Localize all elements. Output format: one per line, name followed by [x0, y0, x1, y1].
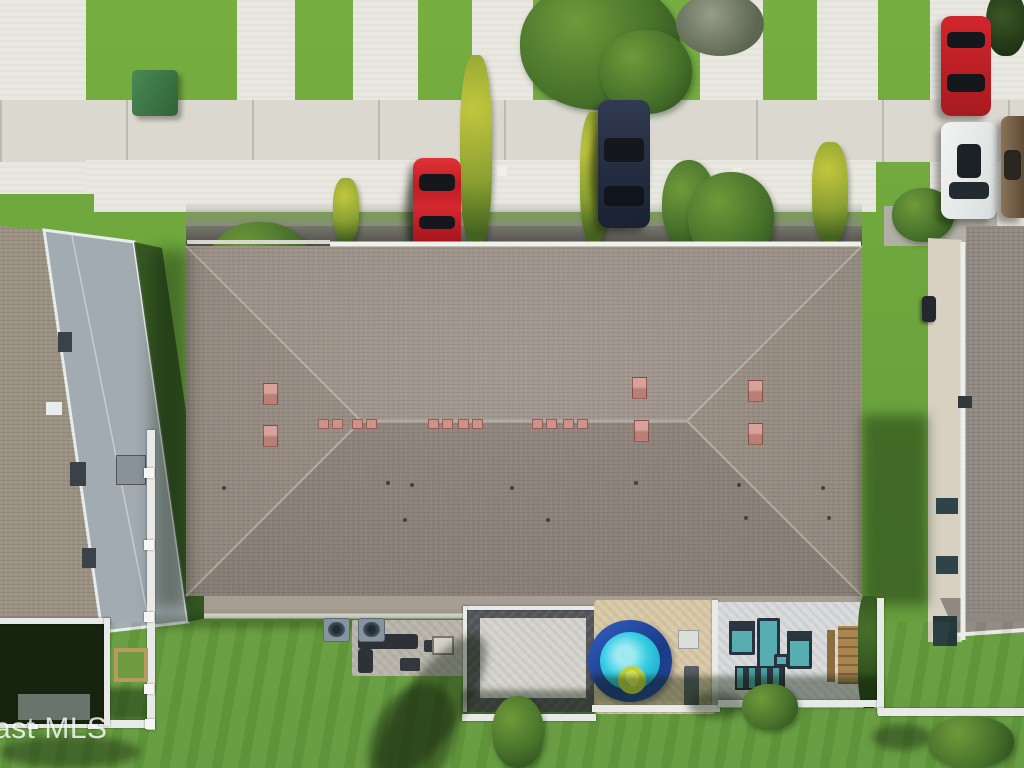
dark-sofa — [358, 649, 373, 673]
garden-bed — [114, 648, 148, 682]
fence-post — [144, 540, 154, 550]
roof-vent — [634, 420, 649, 442]
skylight — [46, 402, 62, 415]
mls-watermark: ast MLS — [0, 712, 108, 746]
pipe-vent — [821, 486, 825, 490]
pipe-vent — [827, 516, 831, 520]
window — [936, 498, 958, 514]
teal-chair — [729, 628, 755, 655]
dark-chair — [400, 658, 420, 671]
roof-vent-pair — [352, 419, 377, 429]
pipe-vent — [744, 516, 748, 520]
lanai-frame — [0, 618, 110, 624]
corridor-shadow — [152, 250, 188, 610]
tree-shadow — [872, 724, 932, 750]
lanai-furniture — [70, 462, 86, 486]
equipment-pad — [116, 455, 146, 485]
pipe-vent — [386, 481, 390, 485]
teal-side-table — [774, 654, 789, 667]
lanai-furniture — [82, 548, 96, 568]
roof-vent — [748, 423, 763, 445]
fence-post — [145, 719, 155, 729]
roof-vent — [748, 380, 763, 402]
pipe-vent — [510, 486, 514, 490]
roof-vent-pair — [532, 419, 557, 429]
aerial-photo: ast MLS — [0, 0, 1024, 768]
yard-fence — [877, 598, 884, 714]
screen-frame — [463, 606, 599, 610]
fence-post — [144, 468, 154, 478]
roof-vent — [263, 425, 278, 447]
teal-chair — [787, 638, 812, 669]
roof-vent-pair — [428, 419, 453, 429]
roof-vent — [632, 377, 647, 399]
small-dark-car — [922, 296, 936, 322]
pipe-vent — [403, 518, 407, 522]
shrub-shadow — [688, 692, 746, 718]
yard-fence — [878, 708, 1024, 716]
pipe-vent — [222, 486, 226, 490]
pool-equipment-box — [678, 630, 699, 649]
center-patio — [480, 618, 586, 698]
roof-vent-pair — [318, 419, 343, 429]
roof-vent-pair — [563, 419, 588, 429]
fence-post — [144, 684, 154, 694]
pipe-vent — [546, 518, 550, 522]
fence-post — [144, 612, 154, 622]
roof-vent-pair — [458, 419, 483, 429]
small-tree — [928, 716, 1014, 768]
pipe-vent — [737, 483, 741, 487]
ac-unit — [358, 618, 385, 642]
pipe-vent — [634, 481, 638, 485]
lanai-frame — [104, 618, 110, 726]
pipe-vent — [410, 483, 414, 487]
roof-skylight — [958, 396, 972, 408]
ac-unit — [323, 618, 350, 642]
picnic-bench — [827, 630, 835, 682]
small-tree — [492, 696, 544, 768]
corridor-shadow — [862, 415, 928, 605]
roof-vent — [263, 383, 278, 405]
window — [936, 556, 958, 574]
lanai-furniture — [58, 332, 72, 352]
shrub — [742, 684, 798, 730]
